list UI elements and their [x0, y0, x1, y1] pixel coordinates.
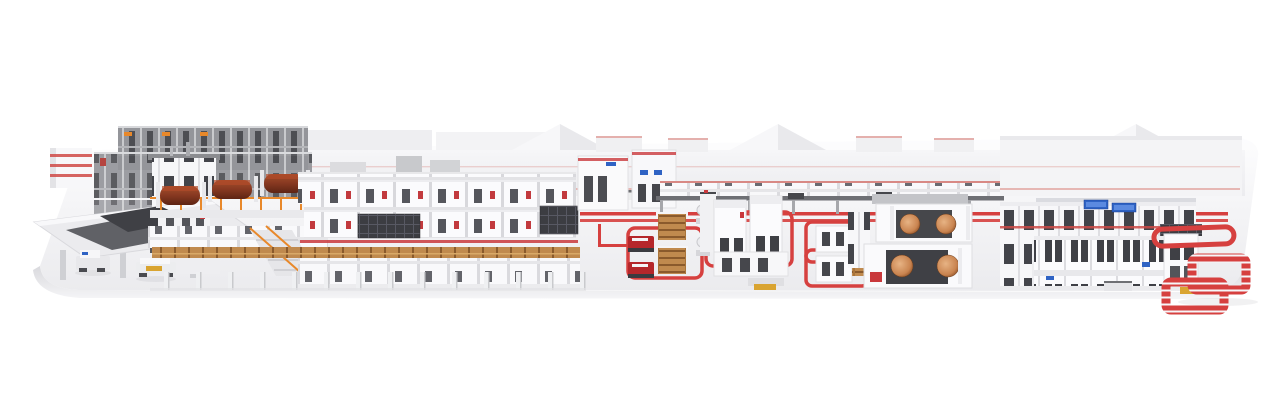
red-striped-cabinet — [50, 148, 92, 188]
dark-panel-a — [358, 214, 420, 238]
wood-walkway — [152, 247, 580, 258]
production-line-render-stage — [0, 0, 1280, 405]
production-line-3d-render — [0, 0, 1280, 405]
red-pipe — [300, 240, 578, 243]
support-legs — [150, 272, 586, 290]
mid-module-row — [304, 204, 576, 238]
gable-roof-2 — [730, 124, 826, 150]
winder-upper — [876, 204, 972, 242]
mezzanine-deck — [150, 210, 330, 218]
under-mezz-cabinets — [148, 226, 328, 248]
winder-lower — [864, 244, 972, 288]
left-tower — [1000, 236, 1032, 286]
building-right — [1000, 140, 1242, 196]
dark-panel-b — [540, 206, 578, 234]
cabinet-1 — [578, 156, 628, 210]
